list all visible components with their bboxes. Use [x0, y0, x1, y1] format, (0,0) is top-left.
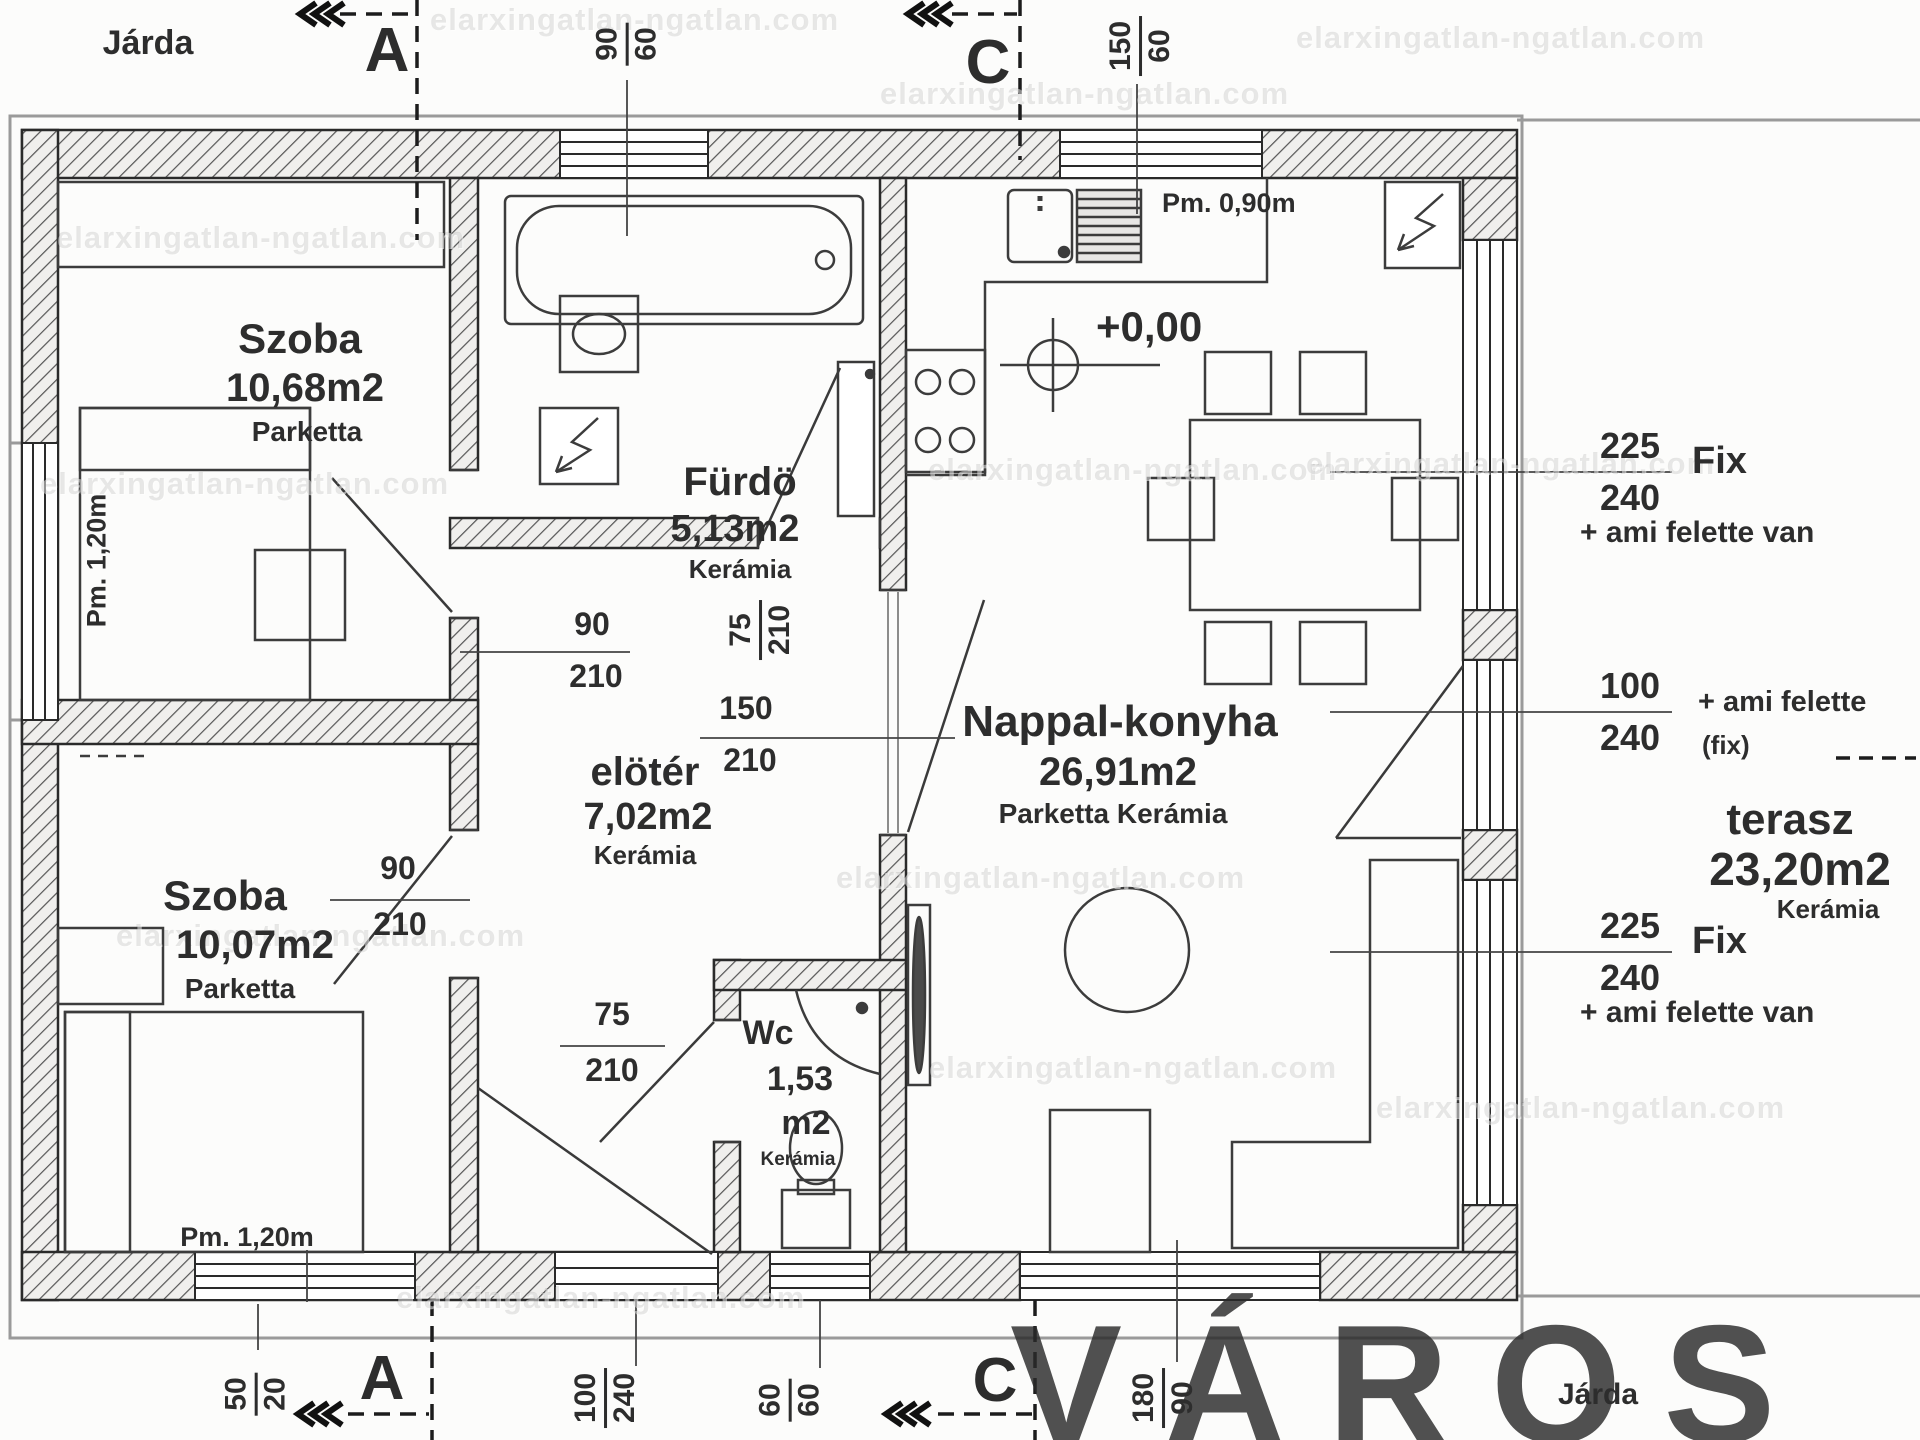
- watermark: elarxingatlan-ngatlan.com: [836, 860, 1245, 896]
- glass-wall-fix-lower: [1463, 880, 1517, 1205]
- room-area-szoba2: 10,07m2: [176, 925, 334, 965]
- dim-fix-upper-num: 225: [1600, 428, 1660, 464]
- round-table: [1065, 888, 1189, 1012]
- room-name-wc: Wc: [743, 1016, 794, 1050]
- fix-upper-note: + ami felette van: [1580, 518, 1814, 548]
- dim-szoba1-door-num: 90: [574, 608, 610, 640]
- section-c-top-arrows: [908, 3, 952, 25]
- room-floor-eloter: Kerámia: [594, 842, 697, 868]
- parapet-120-bottom: Pm. 1,20m: [180, 1224, 314, 1251]
- section-c-bottom-arrows: [886, 1403, 930, 1425]
- dim-szoba1-door-den: 210: [569, 660, 622, 692]
- dim-entrance-door: 100240: [557, 1350, 653, 1440]
- washbasin-bowl: [573, 314, 625, 354]
- wall-wc-top: [714, 960, 906, 990]
- terrace-door-note: + ami felette: [1698, 688, 1866, 717]
- watermark: elarxingatlan-ngatlan.com: [880, 76, 1289, 112]
- room-area-wc-2: m2: [781, 1106, 830, 1140]
- bathtub-drain: [816, 251, 834, 269]
- room-area-terasz: 23,20m2: [1709, 846, 1891, 892]
- room-floor-furdo: Kerámia: [689, 556, 792, 582]
- fix-lower-label: Fix: [1692, 922, 1747, 960]
- watermark: elarxingatlan-ngatlan.com: [396, 1280, 805, 1316]
- wall-glass-stub-3: [1463, 1205, 1517, 1252]
- room-name-szoba2: Szoba: [163, 875, 287, 917]
- glass-wall-terrace-door: [1463, 660, 1517, 830]
- elevation-label: +0,00: [1096, 306, 1202, 348]
- dim-left-sill: 5020: [208, 1346, 304, 1440]
- watermark: elarxingatlan-ngatlan.com: [1296, 20, 1705, 56]
- kitchen-window: [1060, 130, 1262, 178]
- room-floor-szoba1: Parketta: [252, 418, 363, 446]
- chair: [1205, 622, 1271, 684]
- chair: [1300, 622, 1366, 684]
- nightstand-1: [255, 550, 345, 640]
- terrace-door-swing: [1336, 666, 1463, 838]
- bath-window: [560, 130, 708, 178]
- tv-panel: [908, 905, 930, 1085]
- sideboard: [1050, 1110, 1150, 1252]
- room-floor-terasz: Kerámia: [1777, 896, 1880, 922]
- wall-partition-2b: [880, 835, 906, 1252]
- wall-wc-left-b: [714, 1142, 740, 1252]
- bedroom2-window: [195, 1252, 415, 1300]
- room-floor-szoba2: Parketta: [185, 975, 296, 1003]
- room-name-eloter: elötér: [591, 752, 700, 792]
- room-floor-nappali: Parketta Kerámia: [999, 800, 1228, 828]
- wall-glass-stub-2: [1463, 830, 1517, 880]
- jarda-label-bottom: Járda: [1558, 1380, 1638, 1410]
- bathtub: [505, 196, 863, 324]
- glass-wall-fix-upper: [1463, 240, 1517, 610]
- room-name-nappali: Nappal-konyha: [962, 700, 1277, 744]
- watermark: elarxingatlan-ngatlan.com: [1376, 1090, 1785, 1126]
- dim-fix-lower-num: 225: [1600, 908, 1660, 944]
- room-name-furdo: Fürdö: [683, 462, 796, 502]
- dim-wc-door-num: 75: [594, 998, 630, 1030]
- bathtub-inner: [517, 206, 851, 314]
- electric-symbol-bath: [540, 408, 618, 484]
- dim-terrace-door-den: 240: [1600, 720, 1660, 756]
- chair: [1300, 352, 1366, 414]
- fix-lower-note: + ami felette van: [1580, 998, 1814, 1028]
- parapet-090: Pm. 0,90m: [1162, 190, 1296, 217]
- parapet-120-left: Pm. 1,20m: [77, 430, 117, 690]
- electric-symbol-living: [1385, 182, 1460, 268]
- section-c-top: C: [966, 32, 1011, 94]
- room-name-terasz: terasz: [1726, 798, 1853, 842]
- jarda-label-top: Járda: [103, 26, 194, 60]
- dim-fix-lower-den: 240: [1600, 960, 1660, 996]
- shower-head: [857, 1003, 867, 1013]
- chair: [1205, 352, 1271, 414]
- floor-plan: elarxingatlan-ngatlan.com elarxingatlan-…: [0, 0, 1920, 1440]
- bath-door-leaf: [838, 362, 874, 516]
- terrace-door-fix: (fix): [1702, 732, 1750, 758]
- room-area-szoba1: 10,68m2: [226, 368, 384, 408]
- dim-terrace-door-num: 100: [1600, 668, 1660, 704]
- dim-wc-window: 6060: [742, 1352, 838, 1440]
- section-a-top-arrows: [300, 3, 344, 25]
- dim-fix-upper-den: 240: [1600, 480, 1660, 516]
- wall-partition-2a: [880, 178, 906, 590]
- fix-upper-label: Fix: [1692, 442, 1747, 480]
- room-area-furdo: 5,13m2: [671, 510, 800, 548]
- watermark: elarxingatlan-ngatlan.com: [56, 220, 465, 256]
- wall-between-bedrooms: [22, 700, 478, 744]
- chair: [1392, 478, 1458, 540]
- section-a-top: A: [365, 20, 410, 82]
- room-floor-wc: Kerámia: [761, 1150, 836, 1169]
- dim-passage-den: 210: [723, 744, 776, 776]
- watermark: elarxingatlan-ngatlan.com: [928, 452, 1337, 488]
- dim-szoba2-door-num: 90: [380, 852, 416, 884]
- room-area-nappali: 26,91m2: [1039, 752, 1197, 792]
- wall-glass-stub-1: [1463, 610, 1517, 660]
- wall-top: [22, 130, 1517, 178]
- dim-wc-door-den: 210: [585, 1054, 638, 1086]
- dim-bath-window: 9060: [579, 0, 675, 92]
- kitchen-sink: [1008, 190, 1072, 262]
- dim-szoba2-door-den: 210: [373, 908, 426, 940]
- entrance-door-swing: [478, 1088, 712, 1254]
- room-area-eloter: 7,02m2: [584, 798, 713, 836]
- wall-partition-1c: [450, 978, 478, 1252]
- wall-corner-terrace: [1463, 178, 1517, 240]
- dim-passage-num: 150: [719, 692, 772, 724]
- section-a-bottom: A: [360, 1348, 405, 1410]
- section-a-bottom-arrows: [298, 1403, 342, 1425]
- watermark: elarxingatlan-ngatlan.com: [928, 1050, 1337, 1086]
- room-name-szoba1: Szoba: [238, 318, 362, 360]
- washbasin: [560, 296, 638, 372]
- bed-2: [65, 1012, 363, 1252]
- section-c-bottom: C: [973, 1350, 1018, 1412]
- dim-living-window: 18090: [1115, 1350, 1211, 1440]
- dim-bath-door: 75210: [712, 582, 808, 678]
- dim-kitchen-window: 15060: [1092, 0, 1188, 94]
- room-area-wc-1: 1,53: [767, 1062, 833, 1096]
- bed-2-pillow: [65, 1012, 130, 1252]
- kitchen-appliance: [1077, 190, 1141, 262]
